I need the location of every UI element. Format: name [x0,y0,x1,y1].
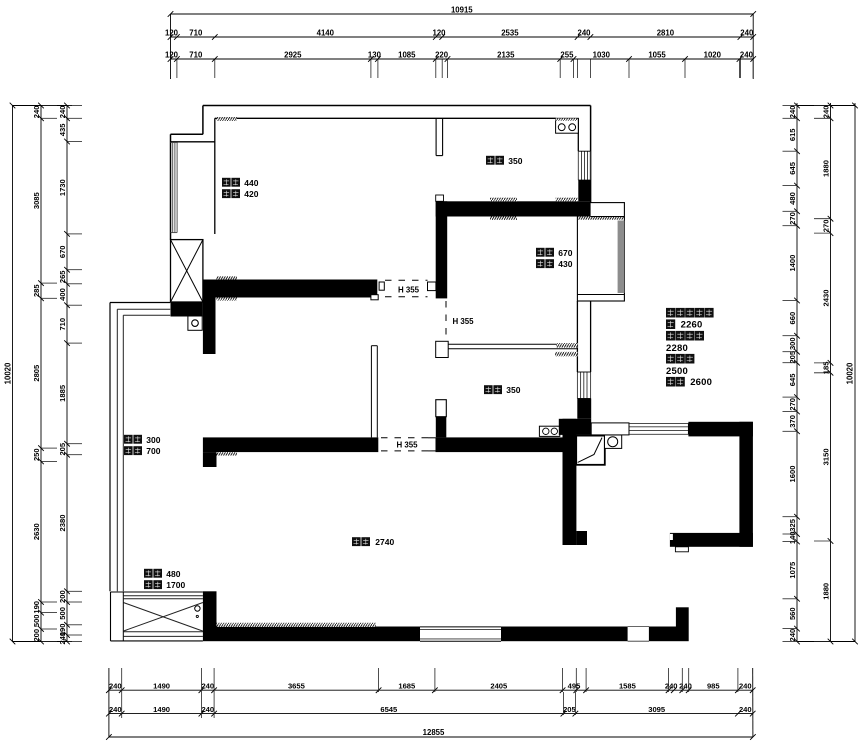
svg-text:10915: 10915 [451,5,473,14]
svg-text:10020: 10020 [3,362,12,384]
svg-text:2925: 2925 [284,50,302,59]
svg-text:120: 120 [165,28,179,37]
svg-text:500: 500 [32,614,41,627]
svg-text:2630: 2630 [32,523,41,540]
svg-text:3095: 3095 [648,705,666,714]
svg-text:255: 255 [560,50,574,59]
svg-text:205: 205 [58,442,67,455]
svg-text:1085: 1085 [398,50,416,59]
svg-text:1880: 1880 [821,583,830,600]
svg-text:350: 350 [508,156,522,166]
svg-text:240: 240 [740,28,754,37]
svg-text:710: 710 [189,28,203,37]
svg-text:2135: 2135 [497,50,515,59]
svg-text:H 355: H 355 [452,317,474,326]
svg-text:12855: 12855 [423,728,445,737]
svg-text:6545: 6545 [380,705,398,714]
svg-text:2430: 2430 [821,290,830,307]
svg-text:2280: 2280 [666,343,688,354]
svg-text:4140: 4140 [317,28,335,37]
svg-text:480: 480 [166,569,180,579]
svg-text:1700: 1700 [166,580,185,590]
svg-text:1600: 1600 [788,466,797,483]
svg-text:240: 240 [32,106,41,119]
svg-text:480: 480 [788,192,797,205]
svg-text:240: 240 [665,681,678,690]
svg-text:700: 700 [146,446,160,456]
svg-text:420: 420 [244,189,258,199]
svg-text:1490: 1490 [153,681,170,690]
svg-text:200: 200 [58,590,67,603]
svg-text:240: 240 [58,106,67,119]
svg-text:325: 325 [788,518,797,531]
svg-text:495: 495 [568,681,581,690]
svg-text:1030: 1030 [593,50,611,59]
svg-text:1020: 1020 [704,50,722,59]
svg-text:240: 240 [577,28,591,37]
svg-text:1685: 1685 [398,681,416,690]
svg-text:240: 240 [788,106,797,119]
svg-text:2740: 2740 [375,537,394,547]
svg-text:120: 120 [165,50,179,59]
svg-text:560: 560 [788,607,797,620]
svg-text:2260: 2260 [681,320,703,331]
svg-text:400: 400 [58,288,67,301]
svg-text:710: 710 [189,50,203,59]
svg-text:2805: 2805 [32,364,41,382]
svg-text:300: 300 [146,435,160,445]
svg-text:265: 265 [58,270,67,283]
svg-text:270: 270 [788,212,797,225]
svg-text:240: 240 [201,681,214,690]
svg-text:130: 130 [368,50,382,59]
svg-text:120: 120 [432,28,446,37]
svg-text:270: 270 [788,398,797,411]
svg-text:1885: 1885 [58,384,67,402]
svg-text:1730: 1730 [58,179,67,196]
svg-text:220: 220 [435,50,449,59]
svg-text:440: 440 [244,178,258,188]
svg-text:350: 350 [506,385,520,395]
svg-text:2810: 2810 [657,28,675,37]
svg-text:1400: 1400 [788,255,797,272]
svg-text:500: 500 [58,607,67,620]
svg-text:670: 670 [558,248,572,258]
svg-text:430: 430 [558,259,572,269]
svg-text:2535: 2535 [501,28,519,37]
svg-text:370: 370 [788,415,797,428]
svg-text:10020: 10020 [846,362,855,384]
svg-text:205: 205 [563,705,576,714]
svg-text:240: 240 [739,705,752,714]
svg-text:3085: 3085 [32,191,41,209]
svg-text:270: 270 [821,220,830,233]
svg-text:1585: 1585 [619,681,637,690]
svg-text:240: 240 [788,629,797,642]
svg-text:710: 710 [58,318,67,331]
svg-text:1075: 1075 [788,561,797,579]
svg-text:3655: 3655 [288,681,306,690]
svg-text:240: 240 [109,705,122,714]
svg-text:660: 660 [788,312,797,325]
svg-text:1055: 1055 [648,50,666,59]
svg-text:240: 240 [739,681,752,690]
svg-text:H 355: H 355 [396,440,418,449]
svg-text:2500: 2500 [666,366,688,377]
svg-text:2380: 2380 [58,515,67,532]
svg-text:H 355: H 355 [398,285,420,294]
svg-text:985: 985 [707,681,720,690]
svg-text:240: 240 [109,681,122,690]
svg-text:645: 645 [788,161,797,174]
svg-text:670: 670 [58,245,67,258]
svg-text:3150: 3150 [821,448,830,465]
svg-text:1490: 1490 [153,705,170,714]
svg-text:240: 240 [679,681,692,690]
svg-text:190: 190 [32,601,41,614]
svg-text:615: 615 [788,128,797,141]
svg-text:2600: 2600 [690,377,712,388]
svg-text:1880: 1880 [821,160,830,177]
svg-text:300: 300 [788,337,797,350]
svg-text:250: 250 [32,448,41,461]
svg-text:240: 240 [58,632,67,645]
svg-text:240: 240 [740,50,754,59]
svg-text:435: 435 [58,123,67,136]
svg-text:645: 645 [788,373,797,386]
svg-text:285: 285 [32,284,41,297]
svg-text:240: 240 [821,106,830,119]
svg-text:240: 240 [201,705,214,714]
svg-text:205: 205 [788,350,797,363]
svg-text:2405: 2405 [490,681,508,690]
svg-text:200: 200 [32,629,41,642]
svg-text:140: 140 [788,531,797,544]
